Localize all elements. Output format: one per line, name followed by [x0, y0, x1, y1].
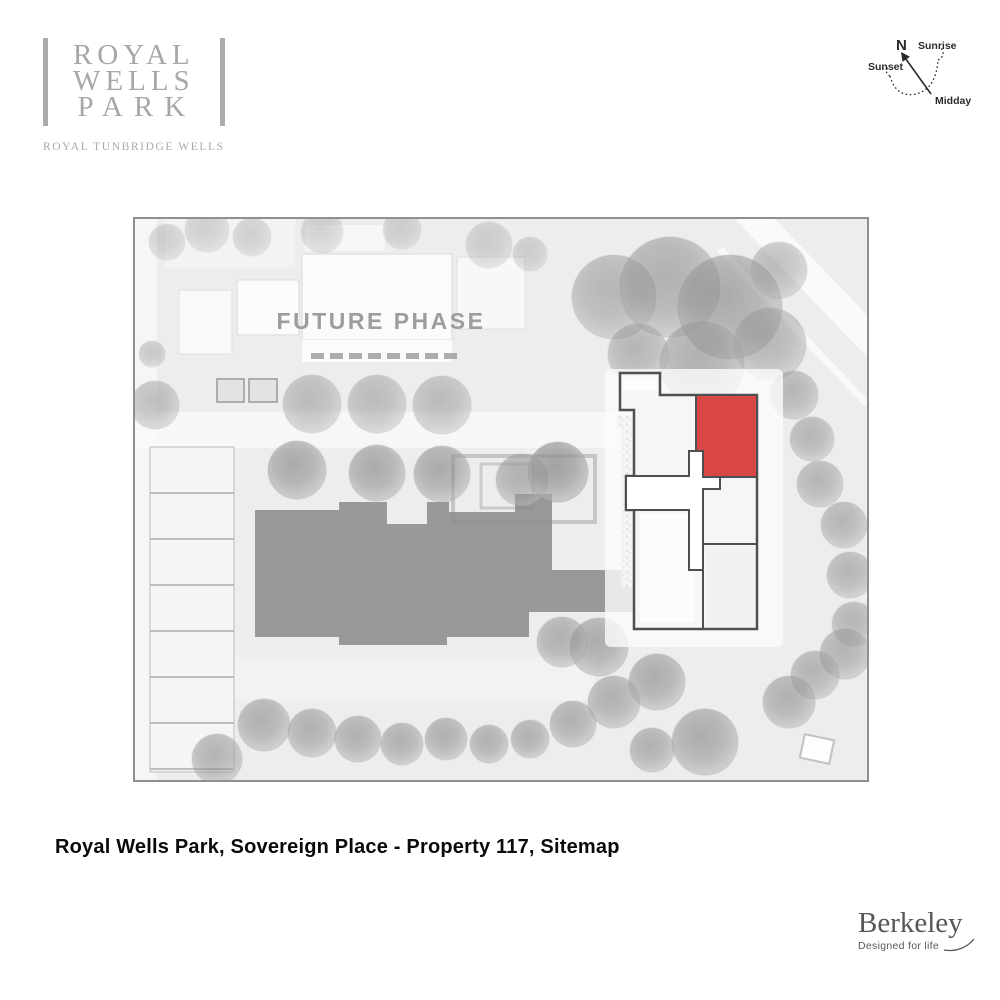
parking-dash	[311, 353, 324, 359]
berkeley-logo: Berkeley Designed for life	[858, 908, 977, 954]
page-caption: Royal Wells Park, Sovereign Place - Prop…	[55, 836, 620, 859]
tree	[192, 734, 242, 780]
tree	[268, 441, 326, 499]
tree	[283, 375, 341, 433]
sun-path-compass-icon: N Sunrise Sunset Midday	[852, 22, 992, 122]
tree	[414, 446, 470, 502]
royal-wells-park-logo: ROYAL WELLS PARK ROYAL TUNBRIDGE WELLS	[43, 38, 225, 153]
tree	[797, 461, 843, 507]
tree	[149, 224, 185, 260]
tree	[381, 723, 423, 765]
compass-needle	[906, 59, 932, 95]
tree	[629, 654, 685, 710]
unit-area	[705, 546, 755, 627]
parking-dash	[425, 353, 438, 359]
future-phase-label: FUTURE PHASE	[277, 308, 486, 334]
tree	[537, 617, 587, 667]
building-top-strip	[623, 377, 657, 390]
berkeley-swash-icon	[943, 938, 977, 954]
berkeley-tagline: Designed for life	[858, 940, 939, 952]
tree	[470, 725, 508, 763]
parking-dash	[368, 353, 381, 359]
parking-dash	[444, 353, 457, 359]
tree	[383, 219, 421, 249]
tree	[288, 709, 336, 757]
sovereign-place-building	[620, 373, 757, 629]
tree	[790, 417, 834, 461]
tree	[511, 720, 549, 758]
tree	[348, 375, 406, 433]
tree	[763, 676, 815, 728]
sitemap-canvas: FUTURE PHASE	[133, 217, 869, 782]
tree	[821, 502, 867, 548]
tree	[413, 376, 471, 434]
tree	[233, 219, 271, 256]
tree	[238, 699, 290, 751]
tree	[672, 709, 738, 775]
tree	[335, 716, 381, 762]
berkeley-wordmark: Berkeley	[858, 908, 977, 938]
parking-dash	[387, 353, 400, 359]
unit-area	[640, 514, 695, 622]
tree	[139, 341, 165, 367]
property-117-highlight[interactable]	[696, 395, 757, 477]
tree	[425, 718, 467, 760]
logo-box: ROYAL WELLS PARK	[43, 38, 225, 126]
parking-ladder	[150, 447, 234, 772]
tree	[135, 381, 179, 429]
parking-dash	[330, 353, 343, 359]
tree	[301, 219, 343, 253]
tree	[751, 242, 807, 298]
tree	[466, 222, 512, 268]
compass-sunrise-label: Sunrise	[918, 40, 957, 52]
logo-subtitle: ROYAL TUNBRIDGE WELLS	[43, 141, 225, 153]
compass-sunset-label: Sunset	[868, 61, 904, 73]
sitemap-drawing: FUTURE PHASE	[135, 219, 867, 780]
tree	[528, 442, 588, 502]
tree	[827, 552, 867, 598]
parking-dash	[349, 353, 362, 359]
tree	[349, 445, 405, 501]
tree	[513, 237, 547, 271]
tree	[630, 728, 674, 772]
outbuilding	[800, 734, 834, 764]
parking-dash	[406, 353, 419, 359]
compass-north-label: N	[896, 37, 907, 54]
compass-midday-label: Midday	[935, 95, 971, 107]
logo-line-3: PARK	[61, 94, 213, 120]
